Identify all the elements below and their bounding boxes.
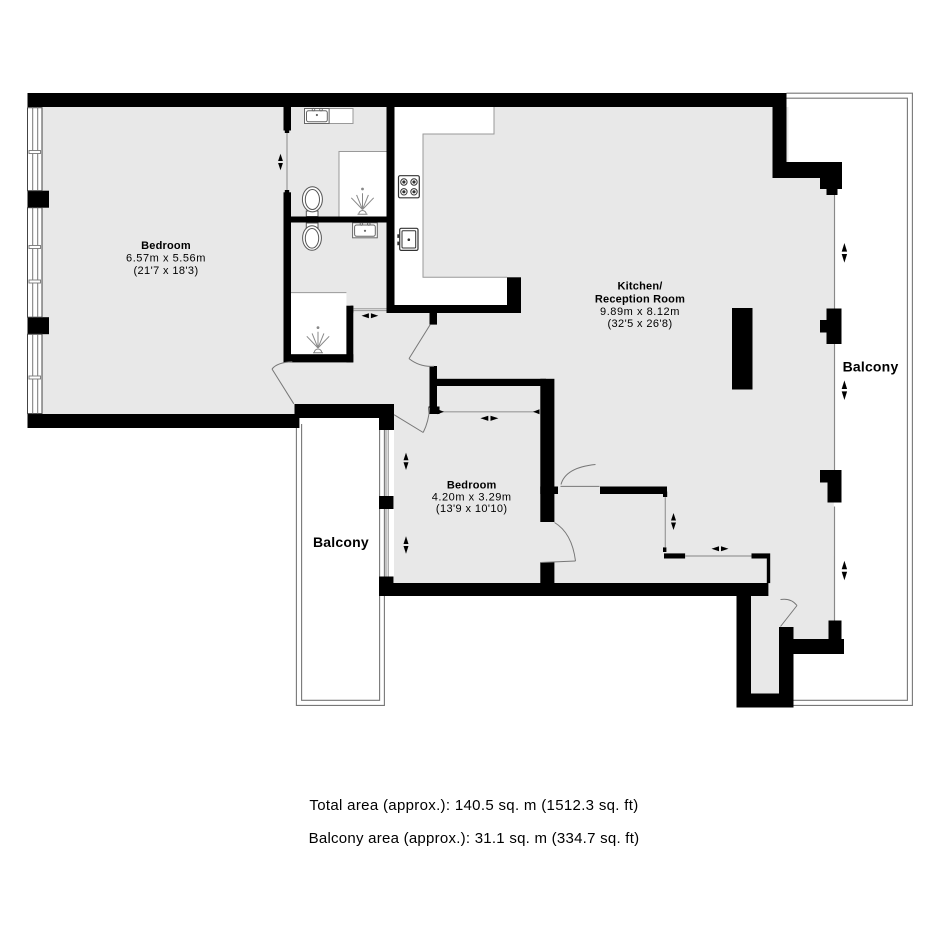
svg-text:Balcony: Balcony — [843, 359, 899, 375]
svg-text:Kitchen/: Kitchen/ — [618, 280, 663, 292]
svg-text:Bedroom: Bedroom — [141, 240, 191, 252]
svg-text:4.20m x 3.29m: 4.20m x 3.29m — [432, 491, 512, 503]
svg-text:6.57m x 5.56m: 6.57m x 5.56m — [126, 252, 206, 264]
svg-text:Total area (approx.): 140.5 sq: Total area (approx.): 140.5 sq. m (1512.… — [309, 797, 638, 814]
svg-text:(21'7 x 18'3): (21'7 x 18'3) — [133, 265, 198, 277]
svg-text:9.89m x 8.12m: 9.89m x 8.12m — [600, 306, 680, 318]
svg-text:(13'9 x 10'10): (13'9 x 10'10) — [436, 503, 508, 515]
svg-text:Balcony: Balcony — [313, 534, 369, 550]
svg-text:Bedroom: Bedroom — [447, 480, 497, 492]
svg-text:Balcony area (approx.): 31.1 s: Balcony area (approx.): 31.1 sq. m (334.… — [309, 830, 640, 847]
svg-text:Reception Room: Reception Room — [595, 294, 685, 306]
svg-text:(32'5 x 26'8): (32'5 x 26'8) — [607, 318, 672, 330]
